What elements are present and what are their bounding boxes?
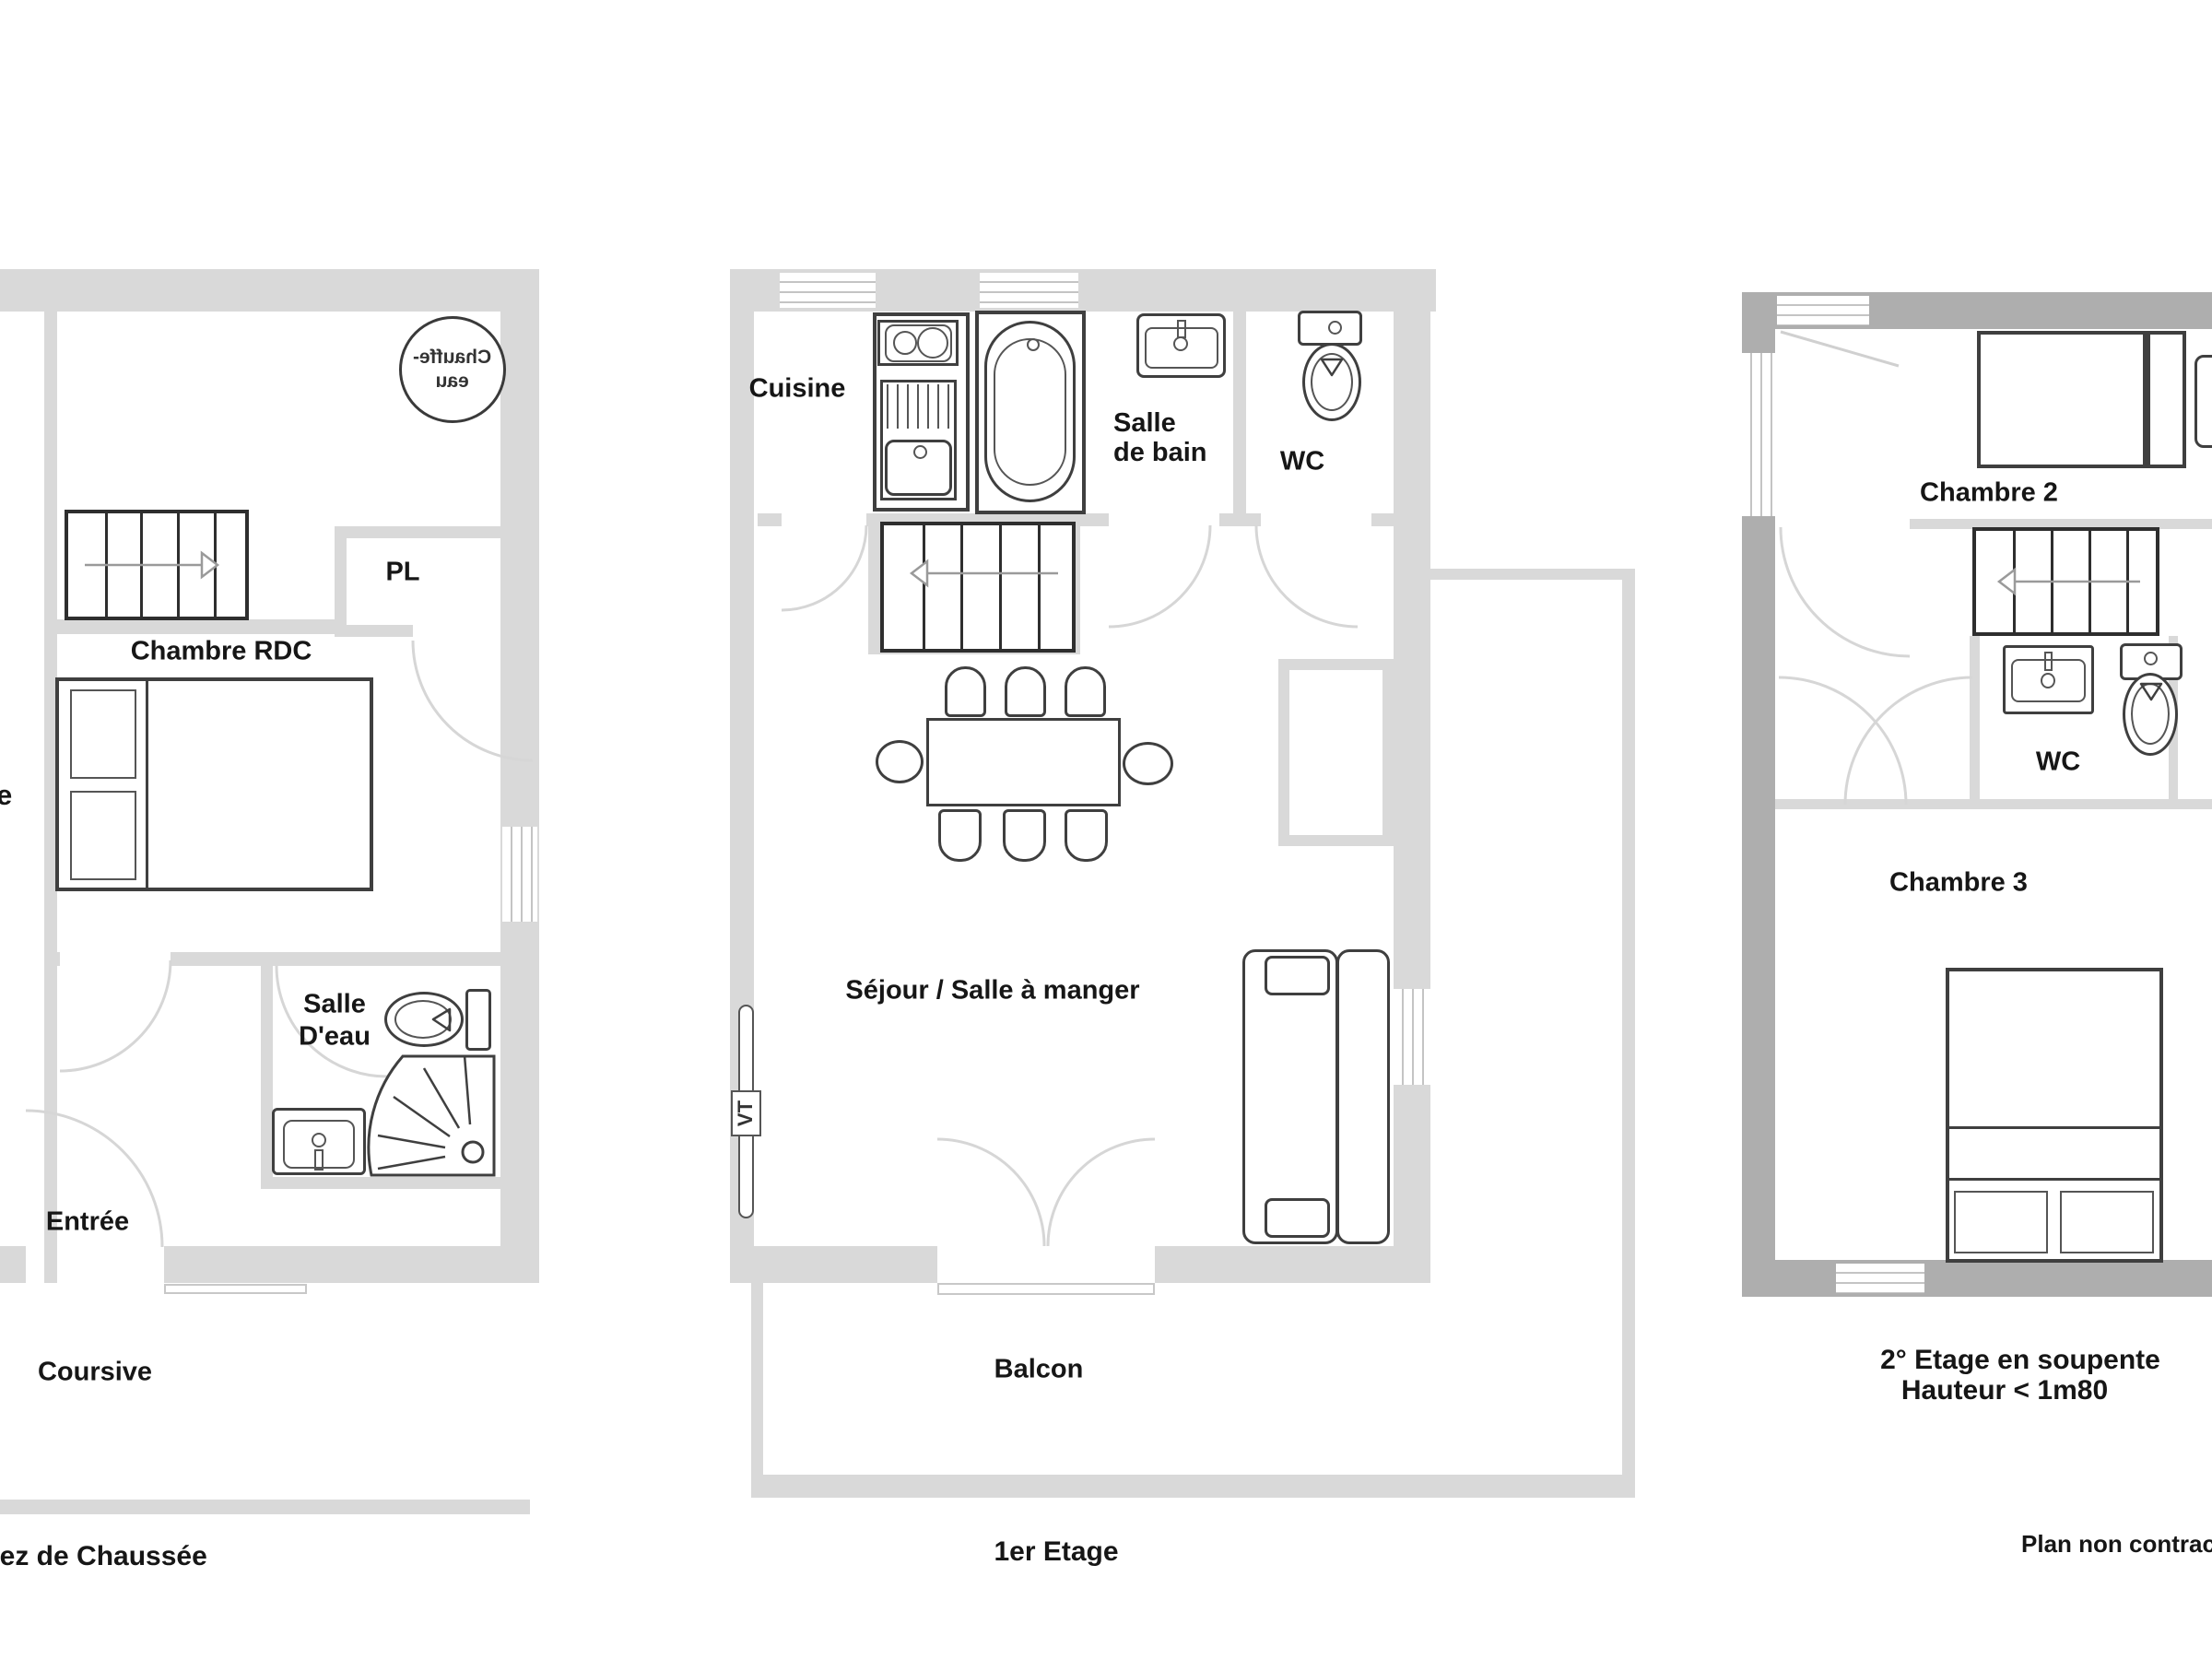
flush-button	[2144, 652, 2158, 665]
room-label-chambre-rdc: Chambre RDC	[131, 637, 312, 667]
room-label-coursive: Coursive	[38, 1358, 152, 1388]
bed-fold-line	[1946, 1178, 2163, 1181]
wall	[335, 625, 413, 637]
wall	[0, 1500, 530, 1514]
room-label-salle-de-bain-1: Salle	[1113, 408, 1176, 439]
staircase	[65, 510, 249, 620]
pillow	[1954, 1191, 2048, 1253]
door-threshold	[164, 1284, 307, 1294]
wall	[164, 1246, 539, 1283]
wall	[734, 1246, 937, 1283]
staircase	[1972, 527, 2159, 636]
stair-tread	[214, 513, 217, 617]
chair	[1123, 742, 1173, 785]
wall	[1394, 312, 1430, 989]
radiator-vt-box: VT	[731, 1090, 761, 1136]
toilet-tank	[465, 989, 491, 1051]
wall	[751, 1283, 763, 1498]
floor-label-2e-1: 2° Etage en soupente	[1880, 1345, 2160, 1376]
wall	[261, 1177, 539, 1189]
wall	[1970, 636, 1980, 799]
room-label-entree: Entrée	[46, 1207, 129, 1238]
wall	[1371, 513, 1394, 526]
stair-tread	[140, 513, 143, 617]
wall	[0, 1246, 26, 1283]
french-door-arc	[1048, 1139, 1155, 1246]
room-label-cuisine: Cuisine	[749, 374, 846, 405]
drainboard-line	[917, 384, 919, 429]
room-label-pl: PL	[385, 558, 419, 588]
door-arc	[1256, 525, 1358, 627]
stair-tread	[2088, 531, 2091, 632]
chair	[1065, 666, 1106, 717]
floor-plan-canvas: Chauffe- eau	[0, 0, 2212, 1659]
window	[780, 273, 876, 308]
dining-table	[926, 718, 1121, 806]
pillow	[70, 689, 136, 779]
shower-spray-lines	[378, 1055, 470, 1169]
wall	[171, 952, 539, 966]
stair-tread	[2126, 531, 2129, 632]
drainboard-line	[887, 384, 888, 429]
pillow	[70, 791, 136, 880]
wall	[1155, 1246, 1430, 1283]
footnote-disclaimer: Plan non contractuel	[2021, 1530, 2212, 1559]
water-heater-label: Chauffe- eau	[413, 346, 491, 394]
sofa-armrest	[1265, 956, 1330, 995]
room-label-sejour: Séjour / Salle à manger	[845, 976, 1139, 1006]
staircase	[880, 522, 1076, 653]
toilet-bowl-inner	[394, 1000, 452, 1039]
sofa-backrest	[1336, 949, 1390, 1244]
nightstand	[2194, 355, 2212, 448]
burner	[893, 331, 917, 355]
wall	[500, 269, 539, 1283]
wall	[1742, 1260, 2212, 1297]
door-threshold	[937, 1283, 1155, 1295]
door-arc	[1109, 525, 1210, 627]
floor-label-2e-2: Hauteur < 1m80	[1901, 1375, 2108, 1406]
shower-enclosure	[369, 1056, 494, 1175]
stair-tread	[960, 525, 963, 649]
window	[1394, 989, 1430, 1085]
french-door-arc	[937, 1139, 1044, 1246]
stair-tread	[105, 513, 108, 617]
bathtub-basin	[994, 338, 1066, 486]
door-arc	[1779, 677, 1906, 805]
drainboard-line	[927, 384, 929, 429]
chair	[876, 740, 924, 783]
toilet-bowl-inner	[1311, 353, 1353, 411]
bed-divider	[146, 677, 148, 891]
drainboard-line	[897, 384, 899, 429]
floor-label-1er: 1er Etage	[994, 1536, 1118, 1568]
pillow	[2060, 1191, 2154, 1253]
stair-tread	[2051, 531, 2053, 632]
chair	[1003, 809, 1046, 862]
burner	[917, 327, 948, 359]
floor-label-rdc: Rez de Chaussée	[0, 1541, 207, 1572]
bathtub-drain	[1027, 338, 1040, 351]
sink-drain	[913, 445, 927, 459]
shower	[369, 1055, 494, 1175]
edge-text-fragment: e	[0, 779, 12, 812]
chair	[938, 809, 982, 862]
wall	[335, 526, 347, 637]
door-arc	[782, 525, 866, 610]
stair-tread	[177, 513, 180, 617]
drainboard-line	[947, 384, 949, 429]
room-label-salle-deau-1: Salle	[303, 990, 366, 1020]
room-label-balcon: Balcon	[994, 1355, 1084, 1385]
faucet-knob	[312, 1133, 326, 1147]
wall	[1430, 569, 1635, 580]
faucet-stem	[314, 1149, 324, 1171]
bed-double	[1977, 331, 2147, 468]
faucet-stem	[2044, 652, 2053, 671]
stair-tread	[999, 525, 1002, 649]
stair-tread	[2013, 531, 2016, 632]
wall	[754, 1475, 1635, 1498]
faucet-knob	[2041, 673, 2055, 688]
window	[1836, 1264, 1924, 1293]
chair	[1065, 809, 1108, 862]
room-label-chambre-2: Chambre 2	[1920, 478, 2058, 509]
chair	[945, 666, 986, 717]
wall	[1233, 312, 1246, 524]
door-arc	[1845, 677, 1972, 805]
wall	[1622, 569, 1635, 1498]
window	[1777, 296, 1869, 325]
casement-line	[1781, 332, 1899, 366]
chair	[1005, 666, 1046, 717]
duct-unit	[1278, 659, 1394, 846]
sofa-armrest	[1265, 1198, 1330, 1238]
room-label-salle-deau-2: D'eau	[299, 1022, 371, 1053]
radiator-label: VT	[735, 1100, 759, 1126]
wall	[44, 952, 60, 966]
room-label-salle-de-bain-2: de bain	[1113, 438, 1207, 468]
wall	[0, 269, 539, 312]
window	[502, 827, 537, 922]
door-arc	[60, 960, 171, 1071]
door-arc	[1781, 527, 1910, 656]
bed-fold-line	[1946, 1126, 2163, 1129]
room-label-wc-1er: WC	[1280, 447, 1324, 477]
flush-button	[1328, 321, 1342, 335]
room-label-chambre-3: Chambre 3	[1889, 868, 2028, 899]
faucet-stem	[1177, 320, 1186, 338]
shower-drain	[463, 1142, 483, 1162]
wall	[1775, 799, 2212, 809]
stair-tread	[923, 525, 925, 649]
room-label-wc-2e: WC	[2036, 747, 2080, 778]
water-heater-icon: Chauffe- eau	[399, 316, 506, 423]
drainboard-line	[937, 384, 939, 429]
toilet-bowl-inner	[2131, 683, 2170, 745]
window	[1742, 353, 1775, 516]
faucet-knob	[1173, 336, 1188, 351]
wall	[44, 619, 335, 634]
bed-footboard	[2147, 331, 2186, 468]
wall	[335, 526, 539, 538]
drainboard-line	[907, 384, 909, 429]
wall	[758, 513, 782, 526]
stair-tread	[1038, 525, 1041, 649]
window	[980, 273, 1078, 308]
